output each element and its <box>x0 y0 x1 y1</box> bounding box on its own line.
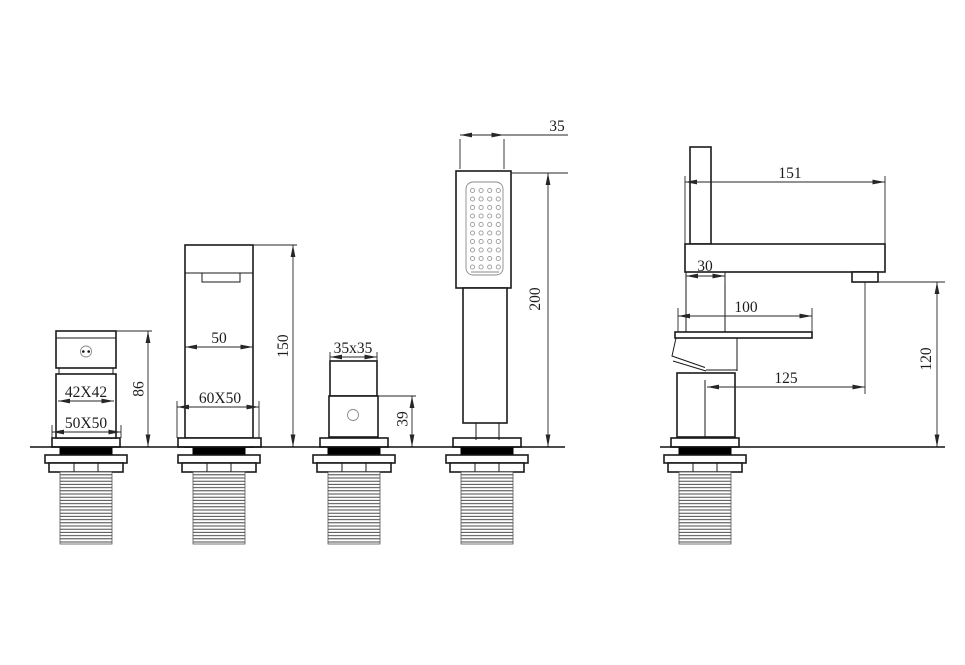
dim-handshower-head-width: 35 <box>460 118 568 169</box>
control-valve-cap <box>56 331 116 368</box>
shank-control-valve <box>45 438 127 544</box>
dim-label-35: 35 <box>549 118 565 135</box>
dim-label-42x42: 42X42 <box>65 384 107 401</box>
dim-label-150: 150 <box>275 334 292 358</box>
dim-label-151: 151 <box>778 165 801 182</box>
dim-label-50: 50 <box>211 330 227 347</box>
shank-diverter <box>313 438 395 544</box>
shank-side-view <box>664 438 746 544</box>
dim-label-50x50: 50X50 <box>65 415 107 432</box>
handshower-side-profile <box>690 147 711 244</box>
dim-label-60x50: 60X50 <box>199 390 241 407</box>
dim-diverter-size: 35x35 <box>330 340 377 362</box>
handle-pivot-side <box>672 338 705 368</box>
dim-handshower-height: 200 <box>511 173 568 447</box>
spout-arm-side <box>685 244 885 272</box>
valve-body-side <box>677 373 735 437</box>
faucet-dimension-drawing: 42X42 50X50 86 50 60X50 <box>0 0 965 665</box>
handle-lever-side <box>675 332 812 338</box>
diverter-knob-top <box>330 361 377 396</box>
dim-label-86: 86 <box>131 381 148 397</box>
dim-label-39: 39 <box>395 411 412 427</box>
dim-lever-length: 100 <box>678 299 812 332</box>
technical-drawing-canvas: 42X42 50X50 86 50 60X50 <box>0 0 965 665</box>
dim-spout-height: 150 <box>253 245 297 447</box>
spout-base-plate <box>178 438 261 447</box>
dim-label-30: 30 <box>697 258 713 275</box>
dim-arm-length: 151 <box>685 165 885 244</box>
dim-label-35x35: 35x35 <box>334 340 373 357</box>
front-view: 42X42 50X50 86 50 60X50 <box>30 118 568 544</box>
handshower-front <box>456 171 511 440</box>
spout-outlet-side <box>852 272 878 282</box>
dim-label-125: 125 <box>774 370 798 387</box>
dim-label-100: 100 <box>734 299 758 316</box>
dim-label-200: 200 <box>527 287 544 311</box>
shank-handshower <box>446 438 528 544</box>
diverter-front <box>329 361 378 437</box>
dim-spout-height-above-deck: 120 <box>878 282 945 447</box>
handshower-handle <box>463 288 507 423</box>
dim-control-valve-width: 42X42 <box>58 384 114 401</box>
dim-label-120: 120 <box>918 347 935 371</box>
side-view: 151 30 100 125 120 <box>660 147 945 544</box>
diverter-knob-base <box>329 396 378 437</box>
shank-spout <box>178 438 260 544</box>
